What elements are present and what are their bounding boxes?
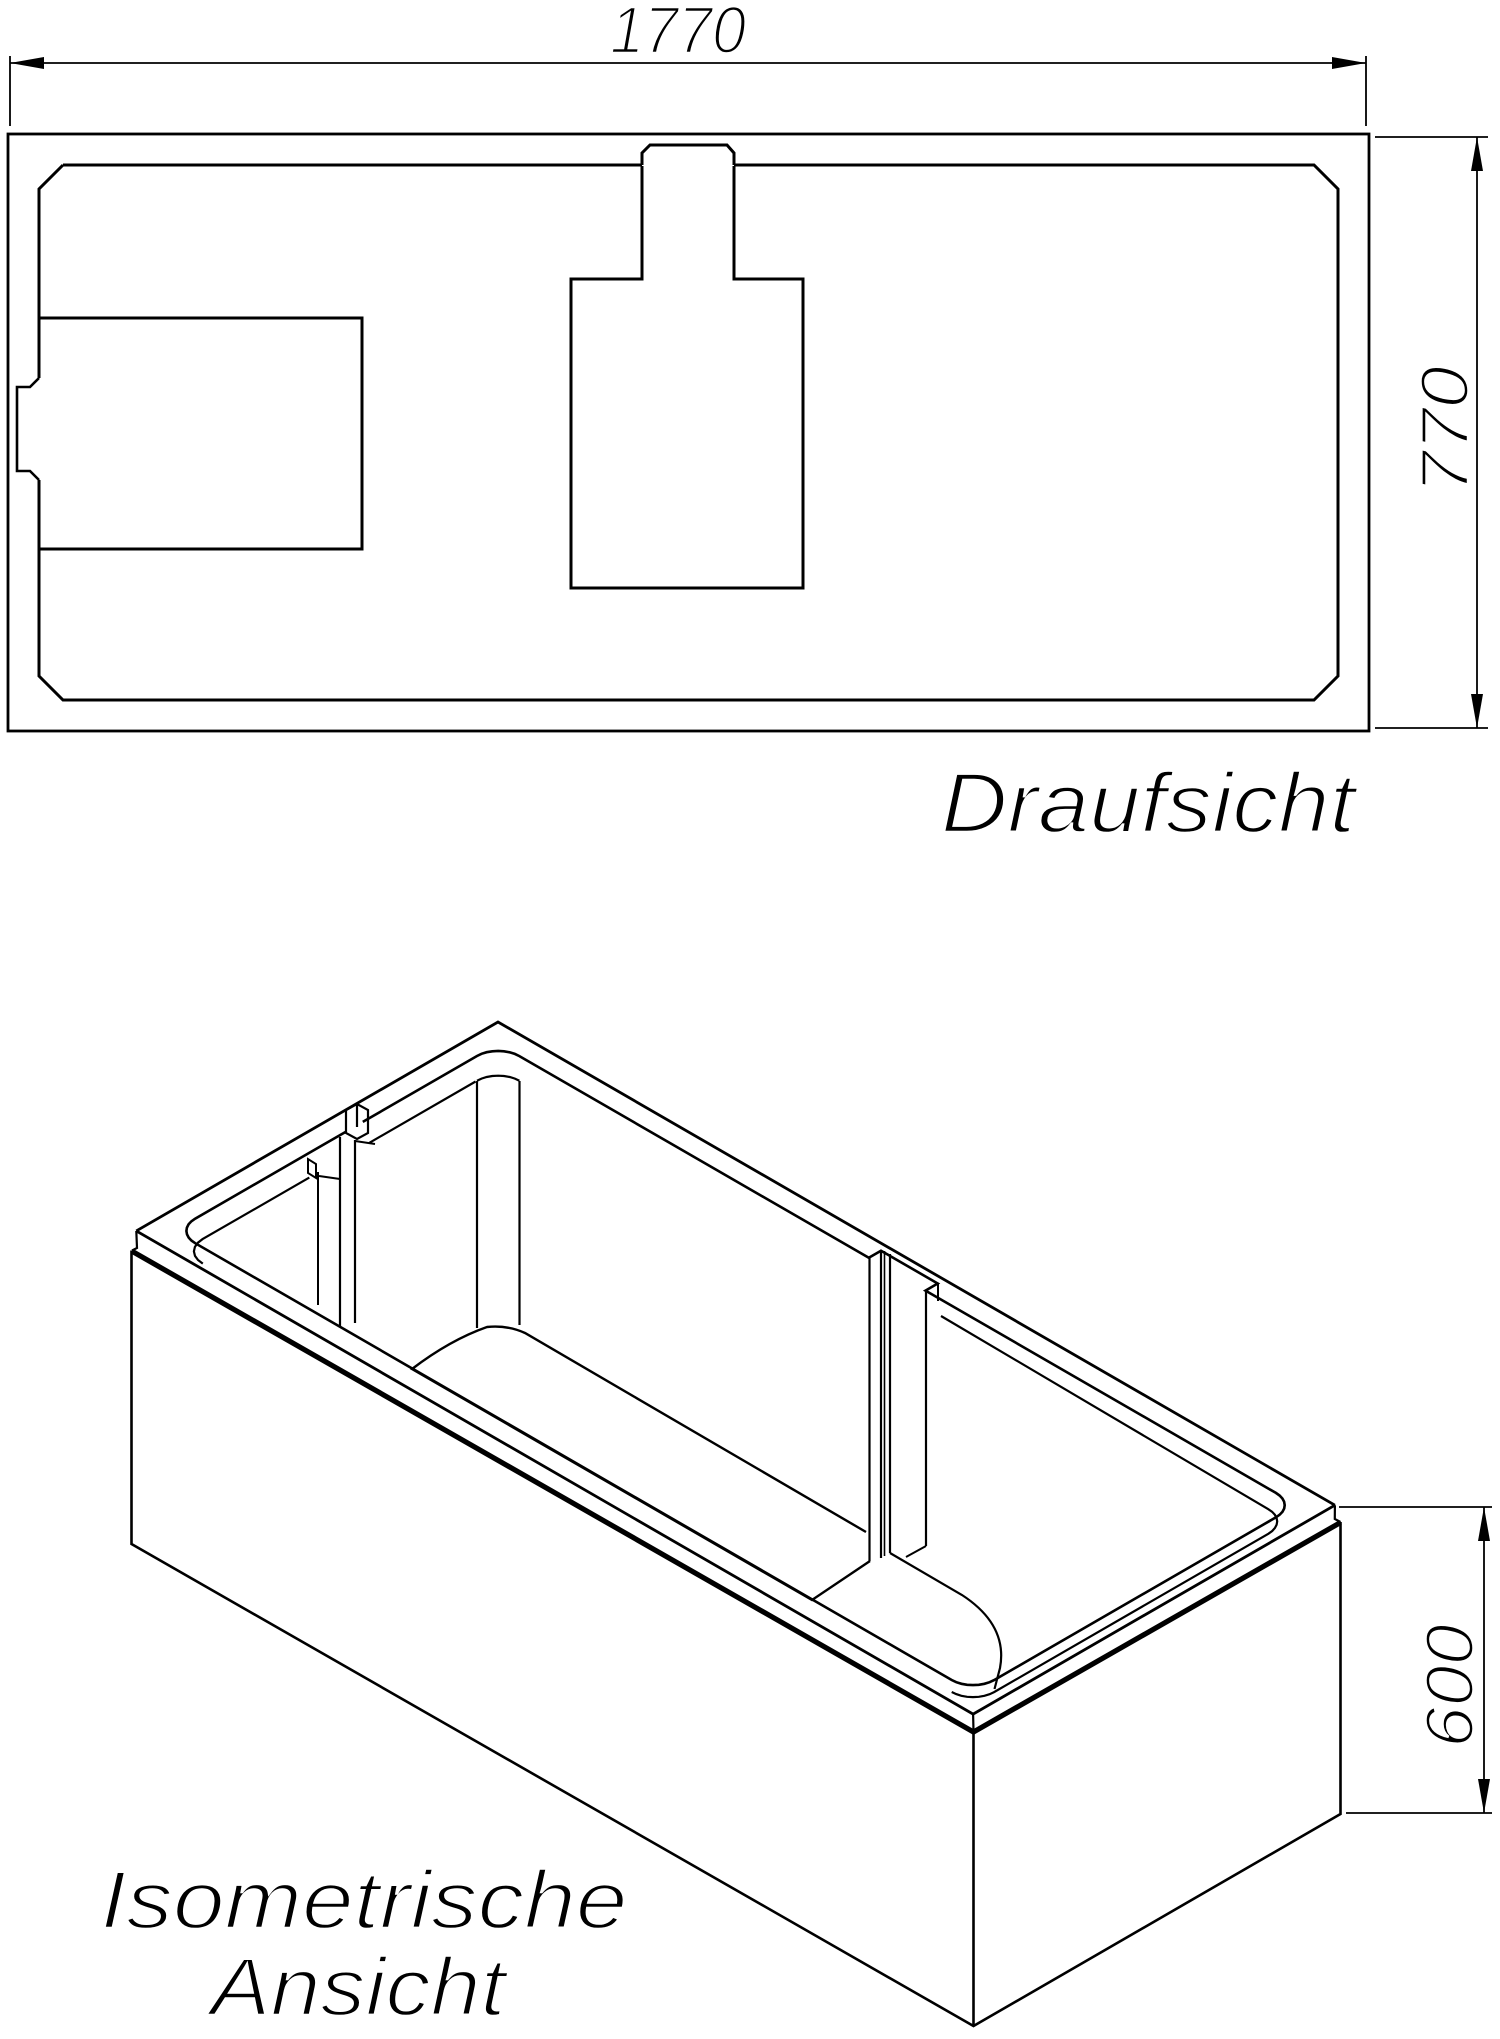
- svg-text:770: 770: [1407, 366, 1483, 494]
- svg-text:Ansicht: Ansicht: [205, 1942, 509, 2033]
- svg-text:Isometrische: Isometrische: [101, 1855, 628, 1946]
- svg-text:1770: 1770: [610, 0, 746, 68]
- svg-text:Draufsicht: Draufsicht: [941, 756, 1359, 850]
- svg-text:600: 600: [1412, 1624, 1488, 1748]
